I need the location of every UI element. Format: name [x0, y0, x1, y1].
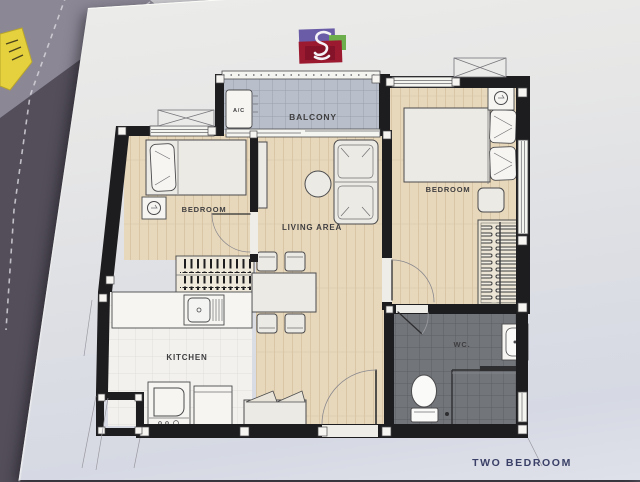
- label-balcony: BALCONY: [289, 112, 337, 122]
- wardrobe-right: [478, 220, 522, 306]
- paper-wrap: A/C: [0, 0, 640, 480]
- floor-plan-sheet: A/C: [0, 0, 640, 480]
- plan-caption: TWO BEDROOM: [432, 457, 612, 469]
- wardrobe-left-hangers: [176, 256, 254, 294]
- dining-chair: [257, 252, 277, 271]
- balcony-railing: [222, 71, 380, 79]
- coffee-table: [305, 171, 331, 197]
- ledge-x-right: [454, 58, 506, 77]
- ceiling-fan-symbol-right: [488, 87, 514, 110]
- dining-chair: [285, 314, 305, 333]
- ceiling-fan-symbol-left: [142, 197, 166, 219]
- dining-chair: [257, 314, 277, 333]
- shower-bar: [480, 366, 516, 371]
- label-bedroom-right: BEDROOM: [426, 185, 471, 194]
- label-bedroom-left: BEDROOM: [182, 205, 227, 214]
- dining-table: [252, 273, 316, 312]
- ledge-x-left: [158, 110, 214, 126]
- balcony-sliding-door: [226, 129, 380, 137]
- floor-drain: [445, 412, 449, 416]
- washing-machine: [148, 382, 190, 428]
- floor-plan-drawing: A/C: [0, 0, 640, 480]
- photo-of-floor-plan: { "colors": { "fabric": "#534e5a", "fabr…: [0, 0, 640, 480]
- label-wc: WC.: [454, 340, 471, 349]
- kitchen-sink: [184, 295, 224, 325]
- sofa: [334, 140, 378, 224]
- shoe-cabinet: [244, 391, 306, 428]
- single-bed: [146, 140, 246, 195]
- refrigerator: [194, 386, 232, 426]
- label-ac: A/C: [233, 108, 245, 114]
- kitchen-counter: [112, 292, 252, 328]
- dining-chair: [285, 252, 305, 271]
- label-kitchen: KITCHEN: [166, 353, 207, 362]
- label-living-area: LIVING AREA: [282, 223, 342, 232]
- nightstand: [478, 188, 504, 212]
- toilet: [411, 375, 438, 422]
